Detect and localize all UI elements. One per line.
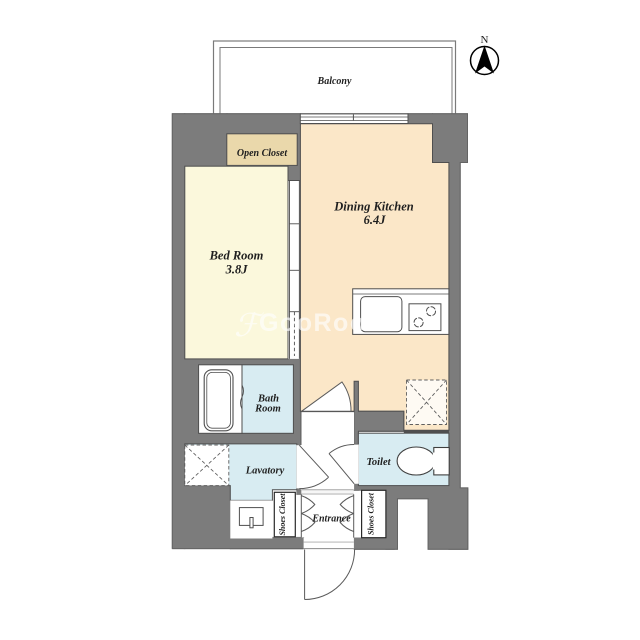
- svg-text:Room: Room: [254, 403, 281, 414]
- svg-text:Entrance: Entrance: [311, 513, 351, 524]
- svg-text:GooRoom: GooRoom: [259, 309, 390, 337]
- svg-text:Bed Room: Bed Room: [209, 249, 264, 263]
- svg-text:N: N: [481, 34, 489, 46]
- svg-text:6.4J: 6.4J: [364, 213, 387, 227]
- svg-text:Shoes Closet: Shoes Closet: [278, 493, 287, 536]
- svg-text:Shoes Closet: Shoes Closet: [367, 492, 376, 535]
- svg-text:Open Closet: Open Closet: [237, 148, 289, 159]
- svg-text:Toilet: Toilet: [366, 457, 391, 468]
- svg-text:Lavatory: Lavatory: [245, 465, 285, 476]
- svg-text:Dining Kitchen: Dining Kitchen: [333, 200, 414, 214]
- svg-text:3.8J: 3.8J: [225, 263, 249, 277]
- svg-text:Balcony: Balcony: [317, 76, 352, 87]
